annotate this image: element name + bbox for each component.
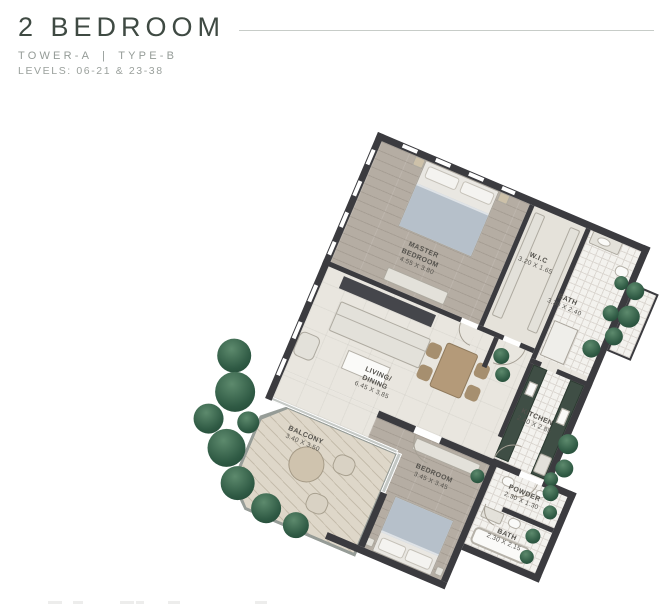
cutoff-text-fragment xyxy=(168,601,180,604)
header-row: 2 BEDROOM xyxy=(18,12,654,43)
subtitle: TOWER-A | TYPE-B xyxy=(18,50,654,62)
cutoff-text-fragment xyxy=(255,601,267,604)
brochure-page: 2 BEDROOM TOWER-A | TYPE-B LEVELS: 06-21… xyxy=(0,0,660,605)
title-rule xyxy=(239,30,654,31)
type-label: TYPE-B xyxy=(118,50,177,62)
floor-plan: MASTER BEDROOM 4.55 X 3.80 W.I.C 3.20 X … xyxy=(214,132,660,605)
page-title: 2 BEDROOM xyxy=(18,12,225,43)
tower-label: TOWER-A xyxy=(18,50,92,62)
cutoff-text-fragment xyxy=(48,601,62,604)
cutoff-text-fragment xyxy=(120,601,134,604)
header: 2 BEDROOM TOWER-A | TYPE-B LEVELS: 06-21… xyxy=(18,12,654,77)
cutoff-text-fragment xyxy=(73,601,83,604)
cutoff-text-fragment xyxy=(136,601,144,604)
subtitle-separator: | xyxy=(102,50,108,62)
levels-label: LEVELS: 06-21 & 23-38 xyxy=(18,65,654,77)
